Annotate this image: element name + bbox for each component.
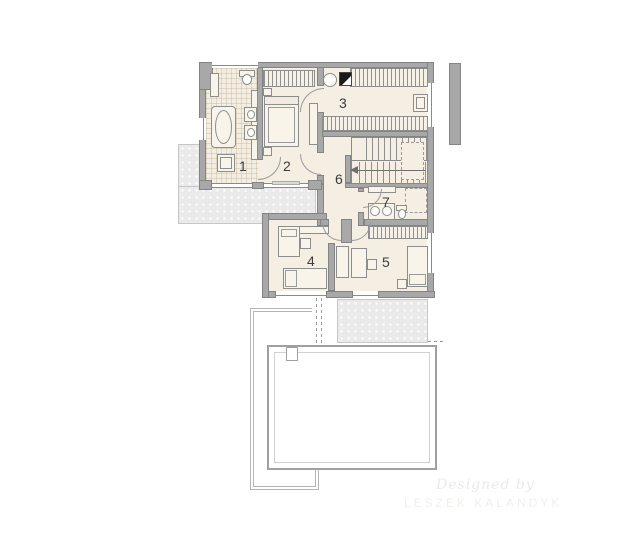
nightstand [263,88,272,96]
toilet-bowl [242,74,252,85]
chair [367,259,377,270]
staircase [351,137,428,184]
sink-basin [370,206,380,216]
floor-plan: 1 2 3 4 5 6 7 Designed by LESZEK KALANDY… [0,0,638,556]
lower-level-roof-inner-line [274,352,430,463]
lower-level-outline [253,311,312,312]
wardrobe-room3-top [350,68,428,87]
lower-level-outline [315,470,316,487]
terrace-door-bottom [353,291,378,298]
room-label-2: 2 [283,158,291,174]
window-right-room5 [427,233,434,273]
projection-dashed-line [428,341,446,342]
wall-door-stub [341,219,352,243]
chimney [286,347,298,361]
wall-room4-top [262,213,327,220]
wall-room7-bottom [364,219,428,226]
desk [351,248,367,278]
window-room4-bottom [276,291,326,298]
nightstand [263,147,272,156]
bed-headboard [264,96,299,105]
terrace-lower [337,299,428,343]
stair-rail-dashed [401,142,424,180]
window-left-bathroom [199,118,206,140]
wardrobe-room2 [263,70,315,87]
bathtub-basin [215,110,232,144]
projection-dashed-line [321,298,322,345]
lower-level-outline [250,489,319,490]
wardrobe-room3-bottom [322,116,428,131]
wardrobe-cabinet [336,246,349,278]
wardrobe-room5 [368,226,428,239]
shower [405,188,427,213]
lower-level-outline [318,470,319,490]
laundry-chute-icon [339,72,352,86]
shower-tray [220,157,232,169]
projection-dashed-line [316,298,317,345]
watermark-designed-by: Designed by [436,477,535,493]
window-top [212,62,258,68]
wall-bottom-bedrooms [378,291,435,298]
door-threshold [272,181,300,185]
exterior-wall-bar [449,63,461,145]
wall-room4-left [262,213,269,298]
room-label-1: 1 [239,158,247,174]
bed-pillow [285,270,297,287]
washer-icon [323,73,337,87]
room-label-7: 7 [382,194,390,210]
radiator [210,73,219,97]
watermark-designer-name: LESZEK KALANDYK [404,496,562,510]
bed-mattress [268,107,295,143]
wall-post [252,182,264,189]
nightstand [397,279,407,289]
wall-post [308,180,322,190]
room-label-4: 4 [307,253,315,269]
room-label-5: 5 [382,254,390,270]
armchair-seat [416,97,425,109]
wall-post [199,180,212,190]
lower-level-outline [250,308,251,490]
bed-pillow [281,229,297,237]
stair-direction-line [356,170,425,171]
stair-direction-arrow [350,166,358,174]
toilet-bowl [398,209,406,219]
sink-basin [247,128,255,137]
lower-level-outline [253,486,316,487]
wall-room4-room5 [328,243,335,291]
sink-basin [247,110,255,119]
room-label-3: 3 [339,95,347,111]
wall-bottom-bedrooms [326,291,353,298]
chair [300,238,311,249]
room-label-6: 6 [335,171,343,187]
lower-level-outline [250,308,312,309]
bed-pillow [409,274,426,285]
lower-level-outline [253,311,254,487]
window-right-room3 [427,83,434,127]
